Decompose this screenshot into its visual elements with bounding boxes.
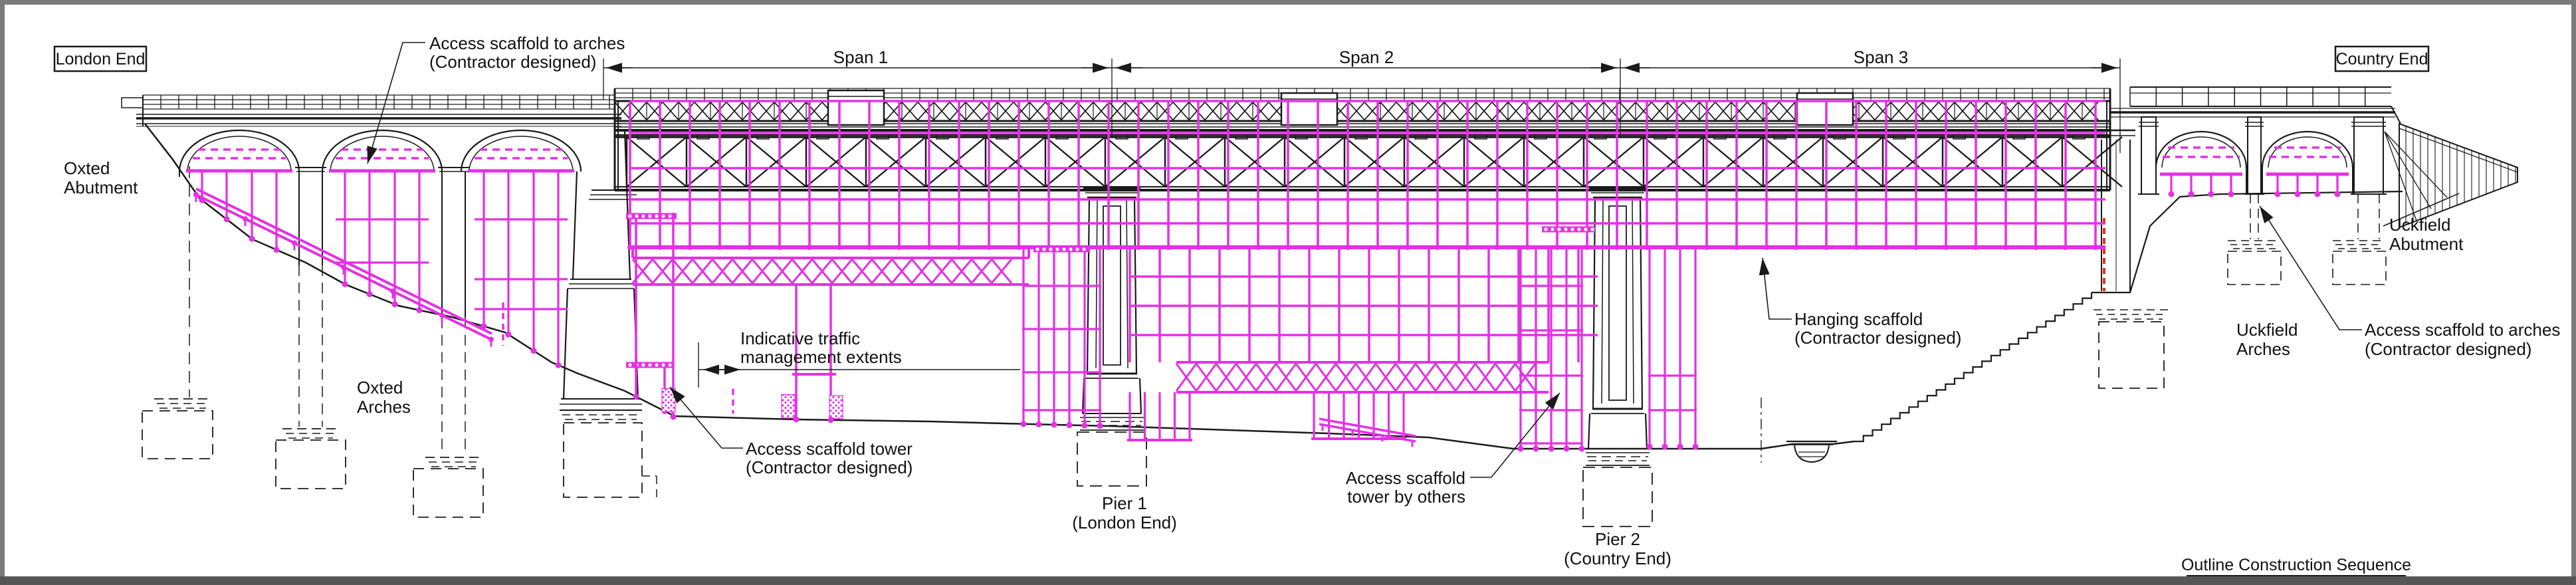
label-oxted-abutment-2: Abutment (64, 177, 138, 197)
label-uckfield-arches-1: Uckfield (2236, 320, 2298, 340)
label-hanging-scaffold-2: (Contractor designed) (1794, 328, 1961, 348)
label-uckfield-abutment-1: Uckfield (2389, 215, 2450, 235)
label-hanging-scaffold-1: Hanging scaffold (1794, 309, 1923, 329)
label-uckfield-arches-2: Arches (2236, 339, 2290, 359)
label-access-scaffold-tower-2: (Contractor designed) (746, 457, 912, 477)
label-access-scaffold-tower-1: Access scaffold tower (746, 439, 912, 459)
label-uckfield-abutment-2: Abutment (2389, 234, 2464, 254)
drawing-sheet: London End Country End Span 1 Span 2 Spa… (0, 0, 2576, 585)
label-oxted-arches-2: Arches (357, 397, 411, 417)
label-span-3: Span 3 (1854, 47, 1908, 67)
label-access-scaffold-arches-left-2: (Contractor designed) (429, 52, 596, 72)
label-access-scaffold-tower-others-2: tower by others (1347, 487, 1465, 507)
label-pier-2-2: (Country End) (1564, 548, 1671, 568)
label-traffic-management-1: Indicative traffic (740, 328, 860, 348)
drawing-title: Outline Construction Sequence (2181, 556, 2411, 574)
label-oxted-arches-1: Oxted (357, 378, 403, 398)
label-pier-2-1: Pier 2 (1595, 529, 1640, 549)
label-oxted-abutment-1: Oxted (64, 158, 110, 178)
label-pier-1-2: (London End) (1072, 513, 1177, 532)
label-access-scaffold-arches-right-1: Access scaffold to arches (2365, 320, 2560, 340)
label-london-end: London End (56, 50, 146, 68)
label-access-scaffold-tower-others-1: Access scaffold (1346, 468, 1465, 488)
label-access-scaffold-arches-right-2: (Contractor designed) (2365, 339, 2531, 359)
label-span-1: Span 1 (833, 47, 888, 67)
label-span-2: Span 2 (1339, 47, 1394, 67)
label-traffic-management-2: management extents (740, 347, 902, 367)
label-access-scaffold-arches-left-1: Access scaffold to arches (429, 33, 625, 53)
label-pier-1-1: Pier 1 (1102, 493, 1147, 513)
label-country-end: Country End (2336, 50, 2428, 68)
construction-sequence-elevation: London End Country End Span 1 Span 2 Spa… (0, 0, 2576, 585)
